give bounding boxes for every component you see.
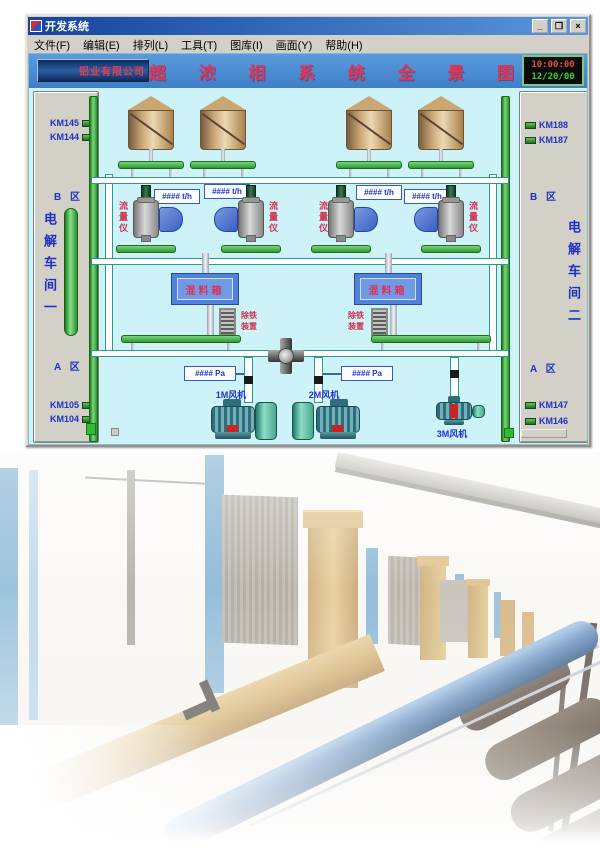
status-led xyxy=(525,402,536,409)
minimize-button[interactable]: _ xyxy=(532,19,548,33)
flow-meter xyxy=(133,200,159,238)
window-title: 开发系统 xyxy=(45,18,529,34)
discharge-chute xyxy=(390,305,397,337)
app-window: 开发系统 _ ❐ × 文件(F) 编辑(E) 排列(L) 工具(T) 图库(I)… xyxy=(25,14,591,447)
hmi-canvas: 铝业有限公司 超 浓 相 系 统 全 景 图 10:00:00 12/20/00… xyxy=(28,53,588,445)
fan-3m xyxy=(436,396,486,430)
workshop-label: 电解车间二 xyxy=(564,220,583,330)
pipe-coupling xyxy=(244,376,253,384)
platform xyxy=(190,161,256,169)
menu-screen[interactable]: 画面(Y) xyxy=(276,37,313,53)
riser-pipe xyxy=(489,174,497,356)
right-workshop-panel: KM188 KM187 B 区 电解车间二 A 区 KM147 KM146 xyxy=(519,91,588,443)
flow-meter-label: 流量仪 xyxy=(317,201,330,234)
km-tag: KM105 xyxy=(50,400,93,410)
fan-label: 3M风机 xyxy=(427,427,477,440)
app-icon xyxy=(30,20,42,32)
km-tag-label: KM145 xyxy=(50,118,79,128)
menu-help[interactable]: 帮助(H) xyxy=(325,37,362,53)
platform xyxy=(118,161,184,169)
zone-a-label: A 区 xyxy=(54,358,83,373)
pressure-display: #### Pa xyxy=(184,366,236,381)
iron-remover xyxy=(371,308,388,336)
menu-tools[interactable]: 工具(T) xyxy=(181,37,217,53)
menu-library[interactable]: 图库(I) xyxy=(230,37,262,53)
menu-edit[interactable]: 编辑(E) xyxy=(83,37,120,53)
feed-chute xyxy=(385,253,392,273)
pipe-coupling xyxy=(314,376,323,384)
km-tag: KM146 xyxy=(525,416,568,426)
km-tag-label: KM147 xyxy=(539,400,568,410)
close-button[interactable]: × xyxy=(570,19,586,33)
zone-a-label: A 区 xyxy=(530,360,559,375)
km-tag-label: KM105 xyxy=(50,400,79,410)
platform xyxy=(408,161,474,169)
status-indicator xyxy=(86,423,96,435)
km-tag-label: KM144 xyxy=(50,132,79,142)
factory-photo xyxy=(0,452,600,842)
platform xyxy=(336,161,402,169)
platform xyxy=(116,245,176,253)
km-tag-label: KM104 xyxy=(50,414,79,424)
mix-box-label: 混料箱 xyxy=(360,278,416,300)
status-led xyxy=(525,418,536,425)
flow-meter xyxy=(328,200,354,238)
km-tag-label: KM187 xyxy=(539,135,568,145)
blower-unit xyxy=(354,207,378,232)
cross-valve xyxy=(268,338,304,374)
storage-silo xyxy=(200,96,246,150)
zone-b-label: B 区 xyxy=(530,188,559,203)
status-indicator xyxy=(111,428,119,436)
flow-display: #### t/h xyxy=(356,185,402,200)
clock-display: 10:00:00 12/20/00 xyxy=(522,55,584,86)
km-tag: KM147 xyxy=(525,400,568,410)
maximize-button[interactable]: ❐ xyxy=(551,19,567,33)
iron-remover xyxy=(219,308,236,336)
platform xyxy=(421,245,481,253)
status-indicator xyxy=(504,428,514,438)
km-tag: KM188 xyxy=(525,120,568,130)
blower-unit xyxy=(159,207,183,232)
company-button[interactable]: 铝业有限公司 xyxy=(37,59,149,82)
km-tag: KM187 xyxy=(525,135,568,145)
fan-1m xyxy=(209,398,279,442)
platform xyxy=(121,335,241,343)
clock-date: 12/20/00 xyxy=(531,71,574,83)
hmi-screen-title: 超 浓 相 系 统 全 景 图 xyxy=(154,57,515,85)
storage-silo xyxy=(418,96,464,150)
blower-unit xyxy=(214,207,238,232)
km-tag-label: KM188 xyxy=(539,120,568,130)
flow-meter xyxy=(238,200,264,238)
discharge-chute xyxy=(207,305,214,337)
km-tag: KM145 xyxy=(50,118,93,128)
platform xyxy=(311,245,371,253)
status-led xyxy=(525,137,536,144)
menu-arrange[interactable]: 排列(L) xyxy=(133,37,168,53)
flow-meter xyxy=(438,200,464,238)
pipe-coupling xyxy=(450,370,459,378)
clock-time: 10:00:00 xyxy=(531,59,574,71)
menu-bar: 文件(F) 编辑(E) 排列(L) 工具(T) 图库(I) 画面(Y) 帮助(H… xyxy=(27,36,589,53)
mix-box: 混料箱 xyxy=(171,273,239,305)
flow-display: #### t/h xyxy=(154,189,200,204)
mix-box: 混料箱 xyxy=(354,273,422,305)
iron-remover-label: 除铁装置 xyxy=(239,310,259,332)
storage-silo xyxy=(346,96,392,150)
busbar-graphic xyxy=(64,208,78,336)
collector-pipe xyxy=(91,258,509,265)
page: 开发系统 _ ❐ × 文件(F) 编辑(E) 排列(L) 工具(T) 图库(I)… xyxy=(0,0,600,848)
menu-file[interactable]: 文件(F) xyxy=(34,37,70,53)
flow-meter-label: 流量仪 xyxy=(117,201,130,234)
photo-corner-fade xyxy=(0,725,270,842)
mix-box-label: 混料箱 xyxy=(177,278,233,300)
pressure-display: #### Pa xyxy=(341,366,393,381)
flow-meter-label: 流量仪 xyxy=(467,201,480,234)
green-riser-pipe xyxy=(89,96,98,442)
green-riser-pipe xyxy=(501,96,510,442)
status-led xyxy=(525,122,536,129)
fan-2m xyxy=(292,398,362,442)
km-tag: KM144 xyxy=(50,132,93,142)
platform xyxy=(371,335,491,343)
header-pipe xyxy=(91,177,509,184)
storage-silo xyxy=(128,96,174,150)
feed-chute xyxy=(202,253,209,273)
panel-button[interactable] xyxy=(521,429,567,438)
zone-b-label: B 区 xyxy=(54,188,83,203)
riser-pipe xyxy=(105,174,113,356)
connector-line xyxy=(323,373,341,375)
platform xyxy=(221,245,281,253)
flow-meter-label: 流量仪 xyxy=(267,201,280,234)
workshop-label: 电解车间一 xyxy=(40,212,59,322)
title-bar: 开发系统 _ ❐ × xyxy=(28,17,588,35)
iron-remover-label: 除铁装置 xyxy=(346,310,366,332)
km-tag-label: KM146 xyxy=(539,416,568,426)
blower-unit xyxy=(414,207,438,232)
